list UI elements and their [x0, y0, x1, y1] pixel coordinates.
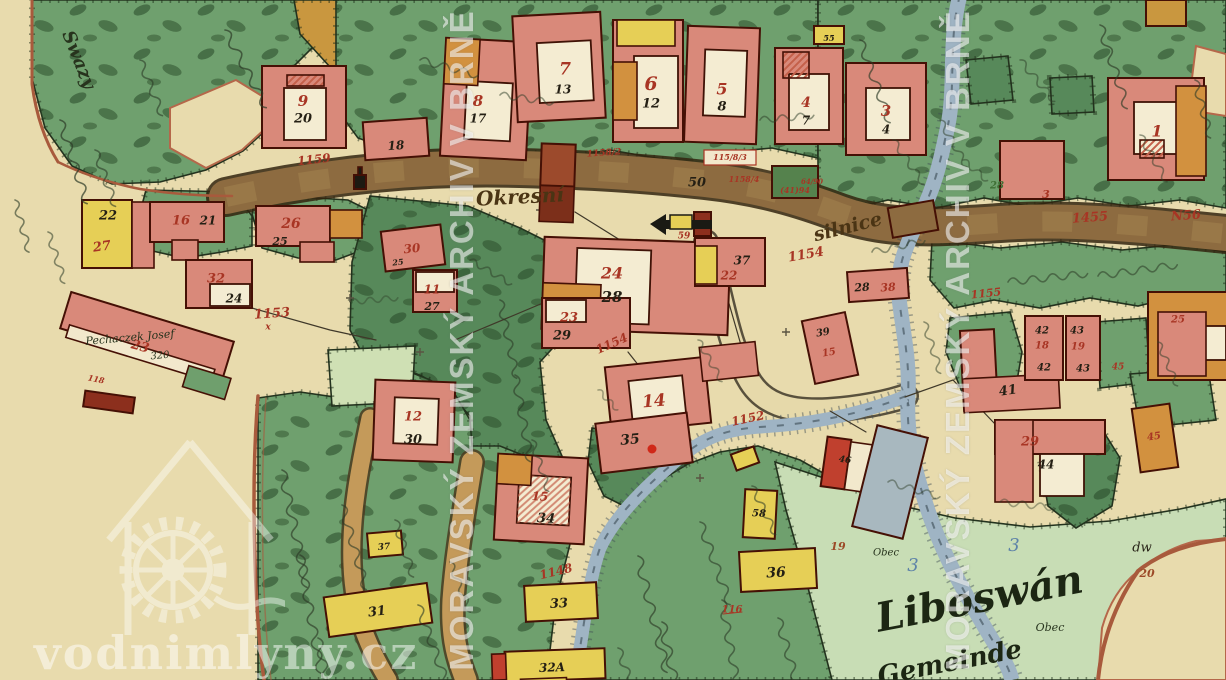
map-label: 31 — [367, 603, 387, 620]
map-label: 20 — [293, 112, 312, 127]
map-label: 58 — [752, 508, 767, 520]
map-label: 25 — [1170, 315, 1185, 326]
map-label: 7 — [559, 60, 571, 80]
map-label: 18 — [1035, 341, 1049, 352]
cadastral-map-svg: 9201881771361258473415528322271621262532… — [0, 0, 1226, 680]
map-label: 34 — [537, 511, 556, 527]
cadastral-map-viewport: 9201881771361258473415528322271621262532… — [0, 0, 1226, 680]
map-label: 320 — [150, 350, 171, 363]
map-label: 25 — [391, 256, 405, 267]
map-label: 20 — [1138, 567, 1155, 580]
map-label: 16 — [172, 214, 190, 229]
map-label: 19 — [1071, 342, 1085, 353]
map-label: 27 — [91, 238, 112, 256]
map-label: 1 — [1151, 122, 1162, 141]
map-label: 42 — [1035, 326, 1049, 337]
map-label: (41)94 — [780, 185, 810, 195]
map-label: 25 — [271, 235, 287, 248]
map-label: 3 — [1042, 188, 1050, 201]
map-label: 28 — [601, 288, 623, 306]
map-label: 1153 — [253, 305, 290, 322]
map-label: 22 — [720, 269, 738, 283]
map-label: 30 — [403, 241, 422, 257]
house-22-27 — [82, 200, 154, 268]
map-label: 4 — [801, 95, 811, 111]
map-label: Obec — [873, 548, 900, 559]
map-label: 22 — [98, 209, 117, 224]
map-label: 29 — [552, 329, 571, 344]
map-label: 35 — [620, 431, 641, 449]
map-label: 13 — [555, 83, 572, 97]
map-label: 4 — [882, 123, 890, 137]
map-label: 12 — [404, 410, 422, 425]
signpost-plate — [670, 215, 692, 229]
map-label: 8 — [717, 100, 726, 115]
map-label: 24 — [600, 264, 623, 283]
map-label: 19 — [830, 540, 846, 553]
map-label: 27 — [423, 300, 440, 313]
map-label: 1455 — [1071, 209, 1108, 226]
map-label: 3 — [907, 555, 918, 576]
map-label: 37 — [734, 254, 751, 268]
map-label: 116 — [722, 605, 743, 616]
map-label: 24 — [225, 292, 243, 306]
map-label: 55 — [823, 33, 835, 43]
map-label: 8 — [473, 92, 484, 110]
map-label: 21 — [199, 214, 217, 228]
map-label: 18 — [387, 138, 405, 153]
map-label: 5 — [716, 80, 727, 99]
map-label: 36 — [766, 564, 787, 581]
map-label: 32A — [539, 660, 565, 675]
map-label: 45 — [1146, 431, 1161, 444]
grove-sq2 — [1050, 76, 1094, 114]
map-label: x — [264, 323, 271, 333]
house-20-25 — [1148, 292, 1226, 380]
map-label: 37 — [377, 542, 391, 553]
map-label: 59 — [678, 232, 691, 242]
map-label: 38 — [880, 280, 897, 294]
map-label: 17 — [470, 112, 487, 126]
house-3b — [1000, 141, 1064, 199]
map-label: 7 — [802, 114, 811, 128]
map-label: 32 — [207, 272, 225, 287]
map-label: 45 — [1112, 363, 1125, 373]
map-label: 43 — [1076, 364, 1090, 375]
map-label: Obec — [1036, 621, 1065, 634]
map-label: 46 — [838, 455, 853, 467]
map-label: Okresní — [475, 182, 566, 211]
map-label: 28 — [853, 280, 871, 294]
map-label: 28 — [989, 181, 1004, 192]
map-label: N56 — [1170, 207, 1202, 224]
shed-topright — [1146, 0, 1186, 26]
map-label: 33 — [550, 596, 569, 612]
map-label: dw — [1132, 541, 1151, 556]
house-35 — [595, 413, 692, 474]
map-label: 29 — [1020, 435, 1039, 450]
map-label: 50 — [688, 176, 706, 191]
map-label: 44 — [1038, 458, 1055, 472]
map-label: 1158/4 — [729, 174, 760, 184]
map-label: 3 — [1008, 535, 1019, 556]
map-label: 42 — [1037, 363, 1051, 374]
map-label: 14 — [641, 391, 666, 413]
map-label: 9 — [298, 92, 309, 110]
map-label: 11 — [424, 283, 441, 297]
red-dot-marker — [648, 445, 657, 454]
map-label: 30 — [404, 433, 422, 448]
map-label: 12 — [642, 97, 660, 112]
map-label: 26 — [280, 216, 301, 232]
map-label: 115/8/3 — [713, 152, 747, 162]
map-label: 64/90 — [801, 177, 823, 186]
map-label: 6 — [644, 73, 657, 95]
map-label: 23 — [559, 311, 578, 326]
map-label: 41 — [998, 382, 1018, 399]
map-label: 43 — [1070, 326, 1084, 337]
map-label: 3 — [881, 102, 891, 120]
map-label: 15 — [531, 489, 548, 504]
grove-sq1 — [966, 56, 1013, 104]
